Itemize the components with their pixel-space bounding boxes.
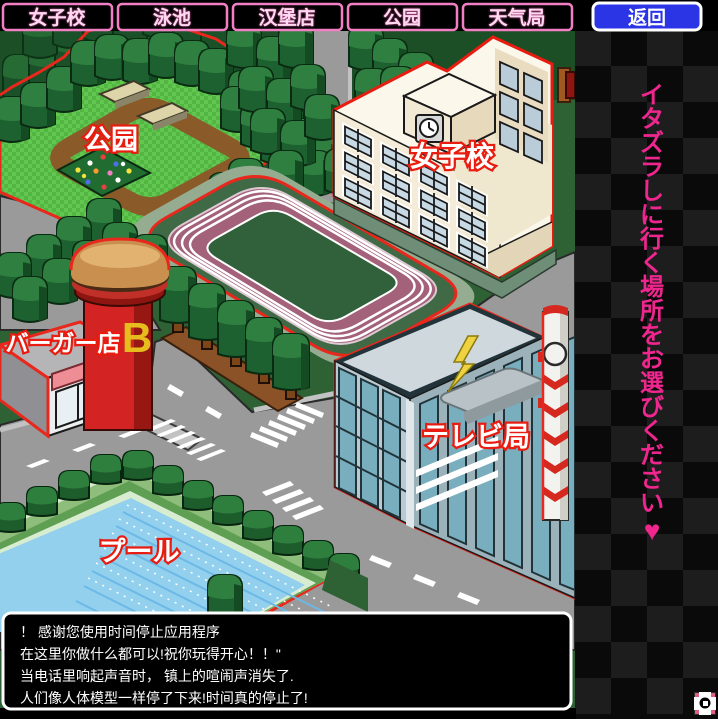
svg-text:公园: 公园 xyxy=(84,125,138,155)
svg-text:く: く xyxy=(640,418,664,445)
svg-text:い: い xyxy=(640,490,664,517)
svg-text:行: 行 xyxy=(639,225,664,253)
svg-text:！ 感谢您使用时间停止应用程序: ！ 感谢您使用时间停止应用程序 xyxy=(20,624,220,640)
svg-text:タ: タ xyxy=(640,106,664,133)
svg-text:在这里你做什么都可以!祝你玩得开心！！": 在这里你做什么都可以!祝你玩得开心！！" xyxy=(20,646,281,662)
svg-text:テレビ局: テレビ局 xyxy=(422,422,530,452)
svg-text:プール: プール xyxy=(99,537,180,567)
svg-text:さ: さ xyxy=(640,466,664,493)
svg-text:場: 場 xyxy=(640,274,664,301)
svg-text:女子校: 女子校 xyxy=(28,6,86,29)
svg-text:ラ: ラ xyxy=(640,154,664,181)
svg-text:天气局: 天气局 xyxy=(488,6,545,29)
svg-text:当电话里响起声音时， 镇上的喧闹声消失了.: 当电话里响起声音时， 镇上的喧闹声消失了. xyxy=(20,668,294,684)
svg-text:に: に xyxy=(640,202,664,229)
svg-text:だ: だ xyxy=(640,442,664,469)
svg-text:公园: 公园 xyxy=(383,7,421,29)
svg-text:♥: ♥ xyxy=(644,515,661,546)
svg-text:イ: イ xyxy=(640,82,664,109)
svg-text:ズ: ズ xyxy=(640,129,664,157)
svg-text:お: お xyxy=(640,346,664,373)
svg-text:汉堡店: 汉堡店 xyxy=(258,6,315,29)
svg-text:泳池: 泳池 xyxy=(153,6,191,29)
svg-text:選: 選 xyxy=(640,370,664,397)
svg-text:女子校: 女子校 xyxy=(410,140,495,172)
svg-text:し: し xyxy=(640,178,664,205)
svg-text:B: B xyxy=(122,314,152,361)
svg-text:び: び xyxy=(640,394,664,421)
svg-text:バーガー店: バーガー店 xyxy=(6,330,121,356)
svg-text:く: く xyxy=(640,250,664,277)
svg-text:を: を xyxy=(640,322,664,349)
svg-text:返回: 返回 xyxy=(628,7,666,29)
svg-text:人们像人体模型一样停了下来!时间真的停止了!: 人们像人体模型一样停了下来!时间真的停止了! xyxy=(20,690,308,706)
svg-text:所: 所 xyxy=(640,298,664,325)
